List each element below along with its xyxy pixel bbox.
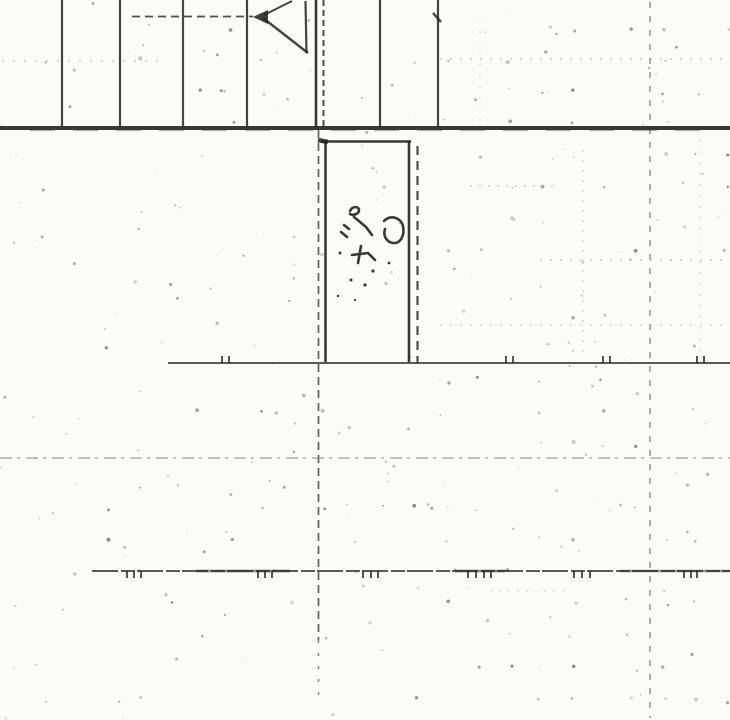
annotation-dot — [339, 252, 342, 255]
paper-background — [0, 0, 730, 720]
scanned-drawing-page — [0, 0, 730, 720]
annotation-dot — [363, 283, 366, 286]
annotation-dot — [350, 279, 353, 282]
annotation-dot — [388, 262, 391, 265]
annotation-dot — [354, 299, 356, 301]
annotation-dot — [371, 269, 374, 272]
floor-plan-drawing — [0, 0, 730, 720]
annotation-dot — [337, 295, 339, 297]
door-corner-blob — [318, 140, 328, 142]
arrow-right-vertical — [306, 1, 307, 53]
